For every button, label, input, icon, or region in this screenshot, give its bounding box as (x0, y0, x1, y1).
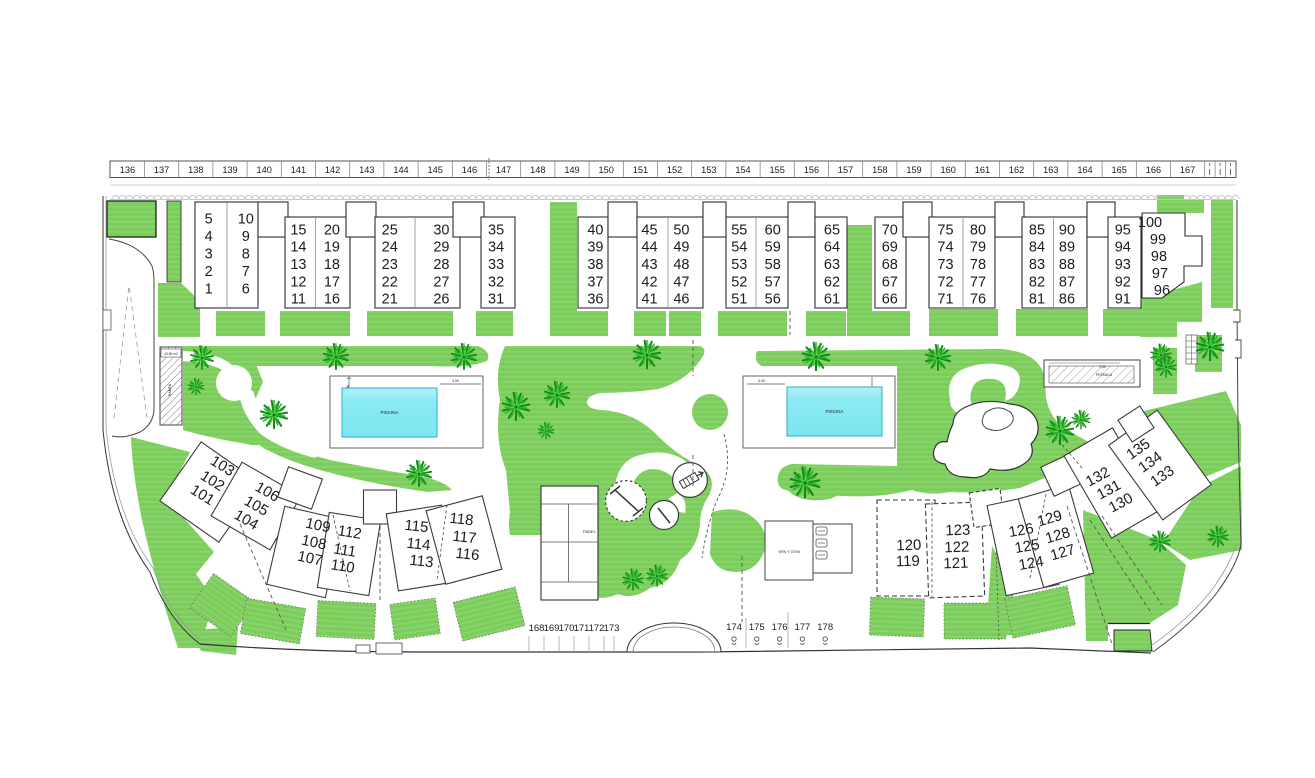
svg-text:RAMPA: RAMPA (168, 383, 172, 396)
svg-text:91: 91 (1115, 292, 1131, 308)
svg-text:5: 5 (205, 212, 213, 228)
svg-text:59: 59 (765, 240, 781, 256)
svg-text:94: 94 (1115, 240, 1131, 256)
svg-text:151: 151 (633, 165, 648, 175)
svg-text:10: 10 (238, 212, 254, 228)
svg-text:79: 79 (970, 240, 986, 256)
svg-text:54: 54 (731, 240, 747, 256)
svg-text:161: 161 (975, 165, 990, 175)
svg-text:98: 98 (1151, 249, 1167, 265)
svg-text:12: 12 (290, 274, 306, 290)
svg-text:139: 139 (222, 165, 237, 175)
svg-text:1: 1 (205, 282, 213, 298)
svg-text:149: 149 (564, 165, 579, 175)
svg-text:23: 23 (382, 257, 398, 273)
svg-text:70: 70 (882, 222, 898, 238)
svg-text:162: 162 (1009, 165, 1024, 175)
svg-text:154: 154 (735, 165, 750, 175)
svg-text:14: 14 (290, 240, 306, 256)
svg-text:22: 22 (382, 274, 398, 290)
svg-text:113: 113 (409, 552, 435, 571)
svg-text:73: 73 (937, 257, 953, 273)
svg-text:118: 118 (449, 510, 475, 529)
svg-text:33: 33 (488, 257, 504, 273)
svg-text:20: 20 (324, 222, 340, 238)
svg-text:60: 60 (765, 222, 781, 238)
svg-text:24: 24 (382, 240, 398, 256)
svg-text:53: 53 (731, 257, 747, 273)
svg-text:75: 75 (937, 222, 953, 238)
svg-text:68: 68 (882, 257, 898, 273)
svg-text:152: 152 (667, 165, 682, 175)
svg-text:43.80 m2: 43.80 m2 (164, 352, 178, 356)
svg-text:47: 47 (673, 274, 689, 290)
svg-text:63: 63 (824, 257, 840, 273)
svg-text:164: 164 (1077, 165, 1092, 175)
svg-text:57: 57 (765, 274, 781, 290)
svg-text:140: 140 (257, 165, 272, 175)
svg-text:77: 77 (970, 274, 986, 290)
svg-text:153: 153 (701, 165, 716, 175)
svg-text:31: 31 (488, 292, 504, 308)
svg-text:169: 169 (544, 623, 560, 634)
svg-text:9: 9 (242, 229, 250, 245)
svg-text:32: 32 (488, 274, 504, 290)
svg-text:15: 15 (290, 222, 306, 238)
svg-text:19: 19 (324, 240, 340, 256)
svg-text:4.00: 4.00 (758, 379, 765, 383)
svg-text:13: 13 (290, 257, 306, 273)
svg-text:163: 163 (1043, 165, 1058, 175)
svg-text:48: 48 (673, 257, 689, 273)
svg-text:121: 121 (943, 555, 969, 573)
svg-text:45: 45 (641, 222, 657, 238)
svg-text:29: 29 (433, 240, 449, 256)
svg-text:50: 50 (673, 222, 689, 238)
svg-text:144: 144 (393, 165, 408, 175)
svg-text:PADEL: PADEL (583, 529, 597, 534)
svg-text:46: 46 (673, 292, 689, 308)
svg-text:67: 67 (882, 274, 898, 290)
svg-text:145: 145 (428, 165, 443, 175)
svg-text:95: 95 (1115, 222, 1131, 238)
svg-text:7: 7 (242, 264, 250, 280)
svg-text:150: 150 (599, 165, 614, 175)
svg-text:83: 83 (1029, 257, 1045, 273)
svg-text:84: 84 (1029, 240, 1045, 256)
svg-text:116: 116 (455, 545, 481, 564)
svg-text:178: 178 (817, 622, 833, 633)
svg-text:89: 89 (1059, 240, 1075, 256)
svg-text:76: 76 (970, 292, 986, 308)
svg-text:61: 61 (824, 292, 840, 308)
svg-text:28: 28 (433, 257, 449, 273)
svg-text:92: 92 (1115, 274, 1131, 290)
svg-text:119: 119 (896, 553, 921, 571)
svg-text:39: 39 (587, 240, 603, 256)
svg-text:174: 174 (726, 622, 742, 633)
svg-text:148: 148 (530, 165, 545, 175)
svg-text:40: 40 (587, 222, 603, 238)
svg-text:138: 138 (188, 165, 203, 175)
svg-text:25: 25 (382, 222, 398, 238)
svg-text:8: 8 (242, 247, 250, 263)
svg-text:81: 81 (1029, 292, 1045, 308)
svg-text:170: 170 (559, 623, 575, 634)
svg-text:36: 36 (587, 292, 603, 308)
svg-text:166: 166 (1146, 165, 1161, 175)
svg-text:4.00: 4.00 (452, 379, 459, 383)
svg-text:69: 69 (882, 240, 898, 256)
svg-text:136: 136 (120, 165, 135, 175)
svg-text:4: 4 (205, 229, 213, 245)
svg-text:172: 172 (589, 623, 605, 634)
svg-text:87: 87 (1059, 274, 1075, 290)
svg-text:175: 175 (749, 622, 765, 633)
svg-text:143: 143 (359, 165, 374, 175)
svg-text:38: 38 (587, 257, 603, 273)
svg-text:65: 65 (824, 222, 840, 238)
svg-text:64: 64 (824, 240, 840, 256)
svg-text:137: 137 (154, 165, 169, 175)
svg-text:7,00: 7,00 (1099, 365, 1106, 369)
svg-text:PISCINA: PISCINA (825, 409, 843, 414)
svg-text:16: 16 (324, 292, 340, 308)
svg-text:49: 49 (673, 240, 689, 256)
svg-text:86: 86 (1059, 292, 1075, 308)
svg-text:93: 93 (1115, 257, 1131, 273)
svg-text:30: 30 (433, 222, 449, 238)
svg-text:159: 159 (906, 165, 921, 175)
svg-text:21: 21 (382, 292, 398, 308)
svg-text:173: 173 (604, 623, 620, 634)
svg-text:PISCINA: PISCINA (380, 410, 398, 415)
svg-text:80: 80 (970, 222, 986, 238)
svg-text:155: 155 (770, 165, 785, 175)
svg-text:37: 37 (587, 274, 603, 290)
svg-text:27: 27 (433, 274, 449, 290)
svg-text:PETANCA: PETANCA (1096, 373, 1113, 377)
svg-text:44: 44 (641, 240, 657, 256)
svg-text:165: 165 (1112, 165, 1127, 175)
svg-text:99: 99 (1150, 232, 1166, 248)
svg-text:17: 17 (324, 274, 340, 290)
svg-text:168: 168 (529, 623, 545, 634)
svg-text:2: 2 (205, 264, 213, 280)
svg-text:156: 156 (804, 165, 819, 175)
svg-text:96: 96 (1154, 283, 1170, 299)
svg-text:158: 158 (872, 165, 887, 175)
svg-text:52: 52 (731, 274, 747, 290)
svg-text:142: 142 (325, 165, 340, 175)
svg-text:58: 58 (765, 257, 781, 273)
svg-text:55: 55 (731, 222, 747, 238)
svg-text:115: 115 (404, 517, 430, 536)
svg-text:6: 6 (242, 282, 250, 298)
svg-text:78: 78 (970, 257, 986, 273)
svg-text:146: 146 (462, 165, 477, 175)
svg-text:71: 71 (937, 292, 953, 308)
svg-text:157: 157 (838, 165, 853, 175)
svg-text:56: 56 (765, 292, 781, 308)
svg-text:66: 66 (882, 292, 898, 308)
svg-text:97: 97 (1152, 266, 1168, 282)
svg-text:51: 51 (731, 292, 747, 308)
svg-text:160: 160 (941, 165, 956, 175)
svg-text:176: 176 (772, 622, 788, 633)
svg-text:62: 62 (824, 274, 840, 290)
svg-text:72: 72 (937, 274, 953, 290)
svg-text:26: 26 (433, 292, 449, 308)
svg-text:147: 147 (496, 165, 511, 175)
svg-text:43: 43 (641, 257, 657, 273)
svg-text:141: 141 (291, 165, 306, 175)
svg-text:34: 34 (488, 240, 504, 256)
svg-text:41: 41 (641, 292, 657, 308)
svg-text:42: 42 (641, 274, 657, 290)
svg-text:90: 90 (1059, 222, 1075, 238)
svg-text:3: 3 (205, 247, 213, 263)
svg-text:74: 74 (937, 240, 953, 256)
svg-text:100: 100 (1138, 215, 1162, 231)
svg-text:11: 11 (291, 292, 306, 308)
svg-text:123: 123 (945, 522, 971, 540)
svg-text:167: 167 (1180, 165, 1195, 175)
svg-text:177: 177 (794, 622, 810, 633)
svg-text:171: 171 (574, 623, 590, 634)
svg-text:88: 88 (1059, 257, 1075, 273)
svg-text:35: 35 (488, 222, 504, 238)
svg-text:SPA Y GYM: SPA Y GYM (778, 549, 799, 554)
svg-text:85: 85 (1029, 222, 1045, 238)
svg-text:82: 82 (1029, 274, 1045, 290)
svg-text:18: 18 (324, 257, 340, 273)
